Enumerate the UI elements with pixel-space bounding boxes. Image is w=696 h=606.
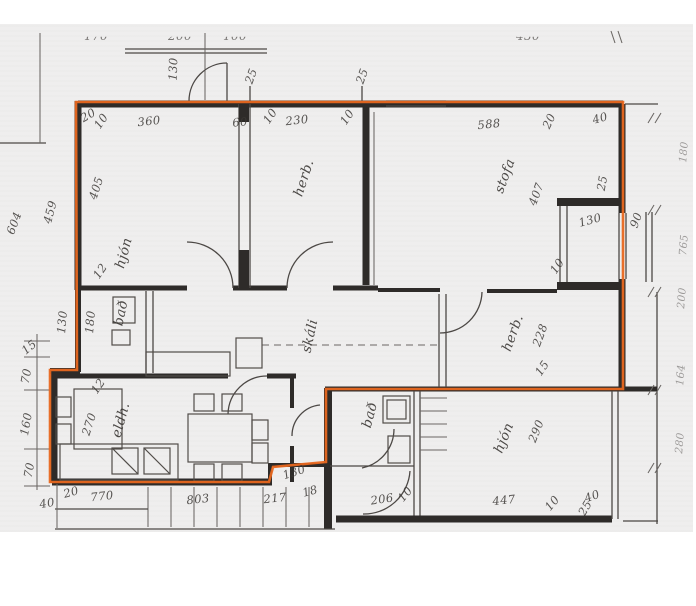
dimension-label: 15 bbox=[19, 337, 40, 358]
edge-dimension-label: 765 bbox=[677, 234, 691, 256]
dimension-label: 20 bbox=[62, 483, 81, 501]
dimension-label: 70 bbox=[21, 461, 37, 479]
dimension-label: 160 bbox=[17, 411, 35, 436]
dimension-label: 180 bbox=[82, 310, 98, 334]
dimension-label: 20 bbox=[539, 111, 558, 131]
dimension-label: 206 bbox=[370, 490, 395, 507]
edge-dimension-label: 180 bbox=[677, 141, 691, 163]
room-label: eldh. bbox=[109, 401, 134, 440]
dimension-label: 60 bbox=[232, 114, 249, 130]
dimension-label: 405 bbox=[86, 175, 106, 201]
dimension-label: 15 bbox=[532, 358, 552, 379]
dimension-label: 459 bbox=[40, 199, 60, 225]
clipped-dimension-label: 170 bbox=[84, 29, 108, 43]
handwritten-labels-layer: hjónherb.stofaherb.skálibaðeldh.baðhjón1… bbox=[0, 0, 696, 606]
edge-dimension-label: 280 bbox=[673, 432, 687, 454]
dimension-label: 10 bbox=[260, 106, 280, 127]
room-label: bað bbox=[359, 400, 381, 429]
edge-dimension-label: 200 bbox=[675, 287, 689, 309]
dimension-label: 270 bbox=[79, 411, 99, 437]
dimension-label: 10 bbox=[547, 256, 567, 277]
dimension-label: 447 bbox=[492, 492, 516, 508]
clipped-dimension-label: 100 bbox=[223, 29, 247, 43]
dimension-label: 90 bbox=[627, 210, 645, 229]
dimension-label: 70 bbox=[18, 367, 34, 385]
dimension-label: 770 bbox=[90, 488, 114, 504]
dimension-label: 18 bbox=[301, 482, 320, 500]
room-label: herb. bbox=[291, 157, 318, 198]
clipped-dimension-label: 200 bbox=[168, 29, 192, 43]
dimension-label: 130 bbox=[281, 462, 307, 482]
dimension-label: 130 bbox=[54, 310, 70, 334]
room-label: bað bbox=[110, 299, 131, 328]
room-label: skáli bbox=[299, 318, 322, 354]
dimension-label: 130 bbox=[577, 210, 603, 230]
dimension-label: 407 bbox=[525, 181, 546, 208]
dimension-label: 360 bbox=[137, 113, 161, 129]
dimension-label: 25 bbox=[242, 66, 260, 85]
dimension-label: 40 bbox=[38, 495, 56, 511]
dimension-label: 10 bbox=[395, 484, 416, 505]
dimension-label: 803 bbox=[186, 491, 210, 507]
dimension-label: 217 bbox=[263, 490, 287, 506]
room-label: stofa bbox=[491, 157, 518, 196]
dimension-label: 25 bbox=[594, 174, 610, 192]
dimension-label: 25 bbox=[353, 66, 371, 85]
dimension-label: 12 bbox=[90, 261, 110, 282]
dimension-label: 10 bbox=[337, 107, 357, 128]
edge-dimension-label: 164 bbox=[674, 364, 688, 386]
dimension-label: 228 bbox=[529, 322, 550, 349]
dimension-label: 130 bbox=[166, 57, 181, 81]
dimension-label: 604 bbox=[3, 210, 24, 237]
clipped-dimension-label: 430 bbox=[516, 29, 540, 43]
floorplan-scan: hjónherb.stofaherb.skálibaðeldh.baðhjón1… bbox=[0, 0, 696, 606]
dimension-label: 290 bbox=[525, 418, 547, 445]
room-label: hjón bbox=[112, 236, 136, 270]
dimension-label: 588 bbox=[477, 116, 501, 132]
dimension-label: 40 bbox=[591, 109, 610, 127]
room-label: herb. bbox=[499, 312, 527, 353]
dimension-label: 12 bbox=[88, 376, 108, 397]
dimension-label: 10 bbox=[542, 493, 563, 514]
dimension-label: 230 bbox=[285, 112, 309, 128]
room-label: hjón bbox=[491, 420, 518, 455]
